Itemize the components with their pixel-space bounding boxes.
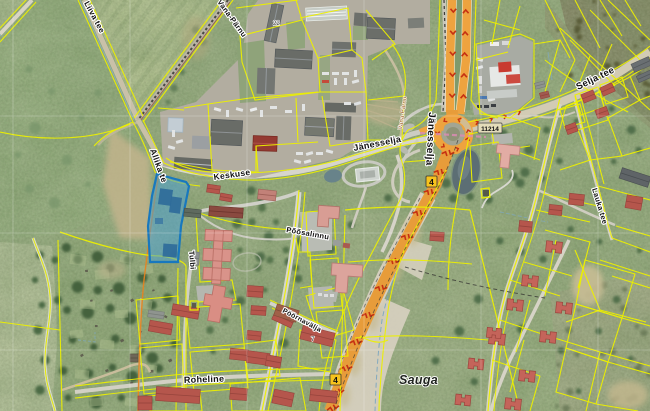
svg-text:4: 4 [333, 375, 338, 385]
svg-text:7: 7 [311, 336, 315, 343]
svg-text:11214: 11214 [481, 126, 499, 133]
svg-text:Roheline: Roheline [184, 374, 225, 385]
svg-text:Tulbi: Tulbi [187, 250, 198, 270]
svg-text:4: 4 [429, 177, 434, 187]
svg-text:22: 22 [273, 21, 280, 27]
svg-text:Sauga: Sauga [399, 373, 438, 387]
